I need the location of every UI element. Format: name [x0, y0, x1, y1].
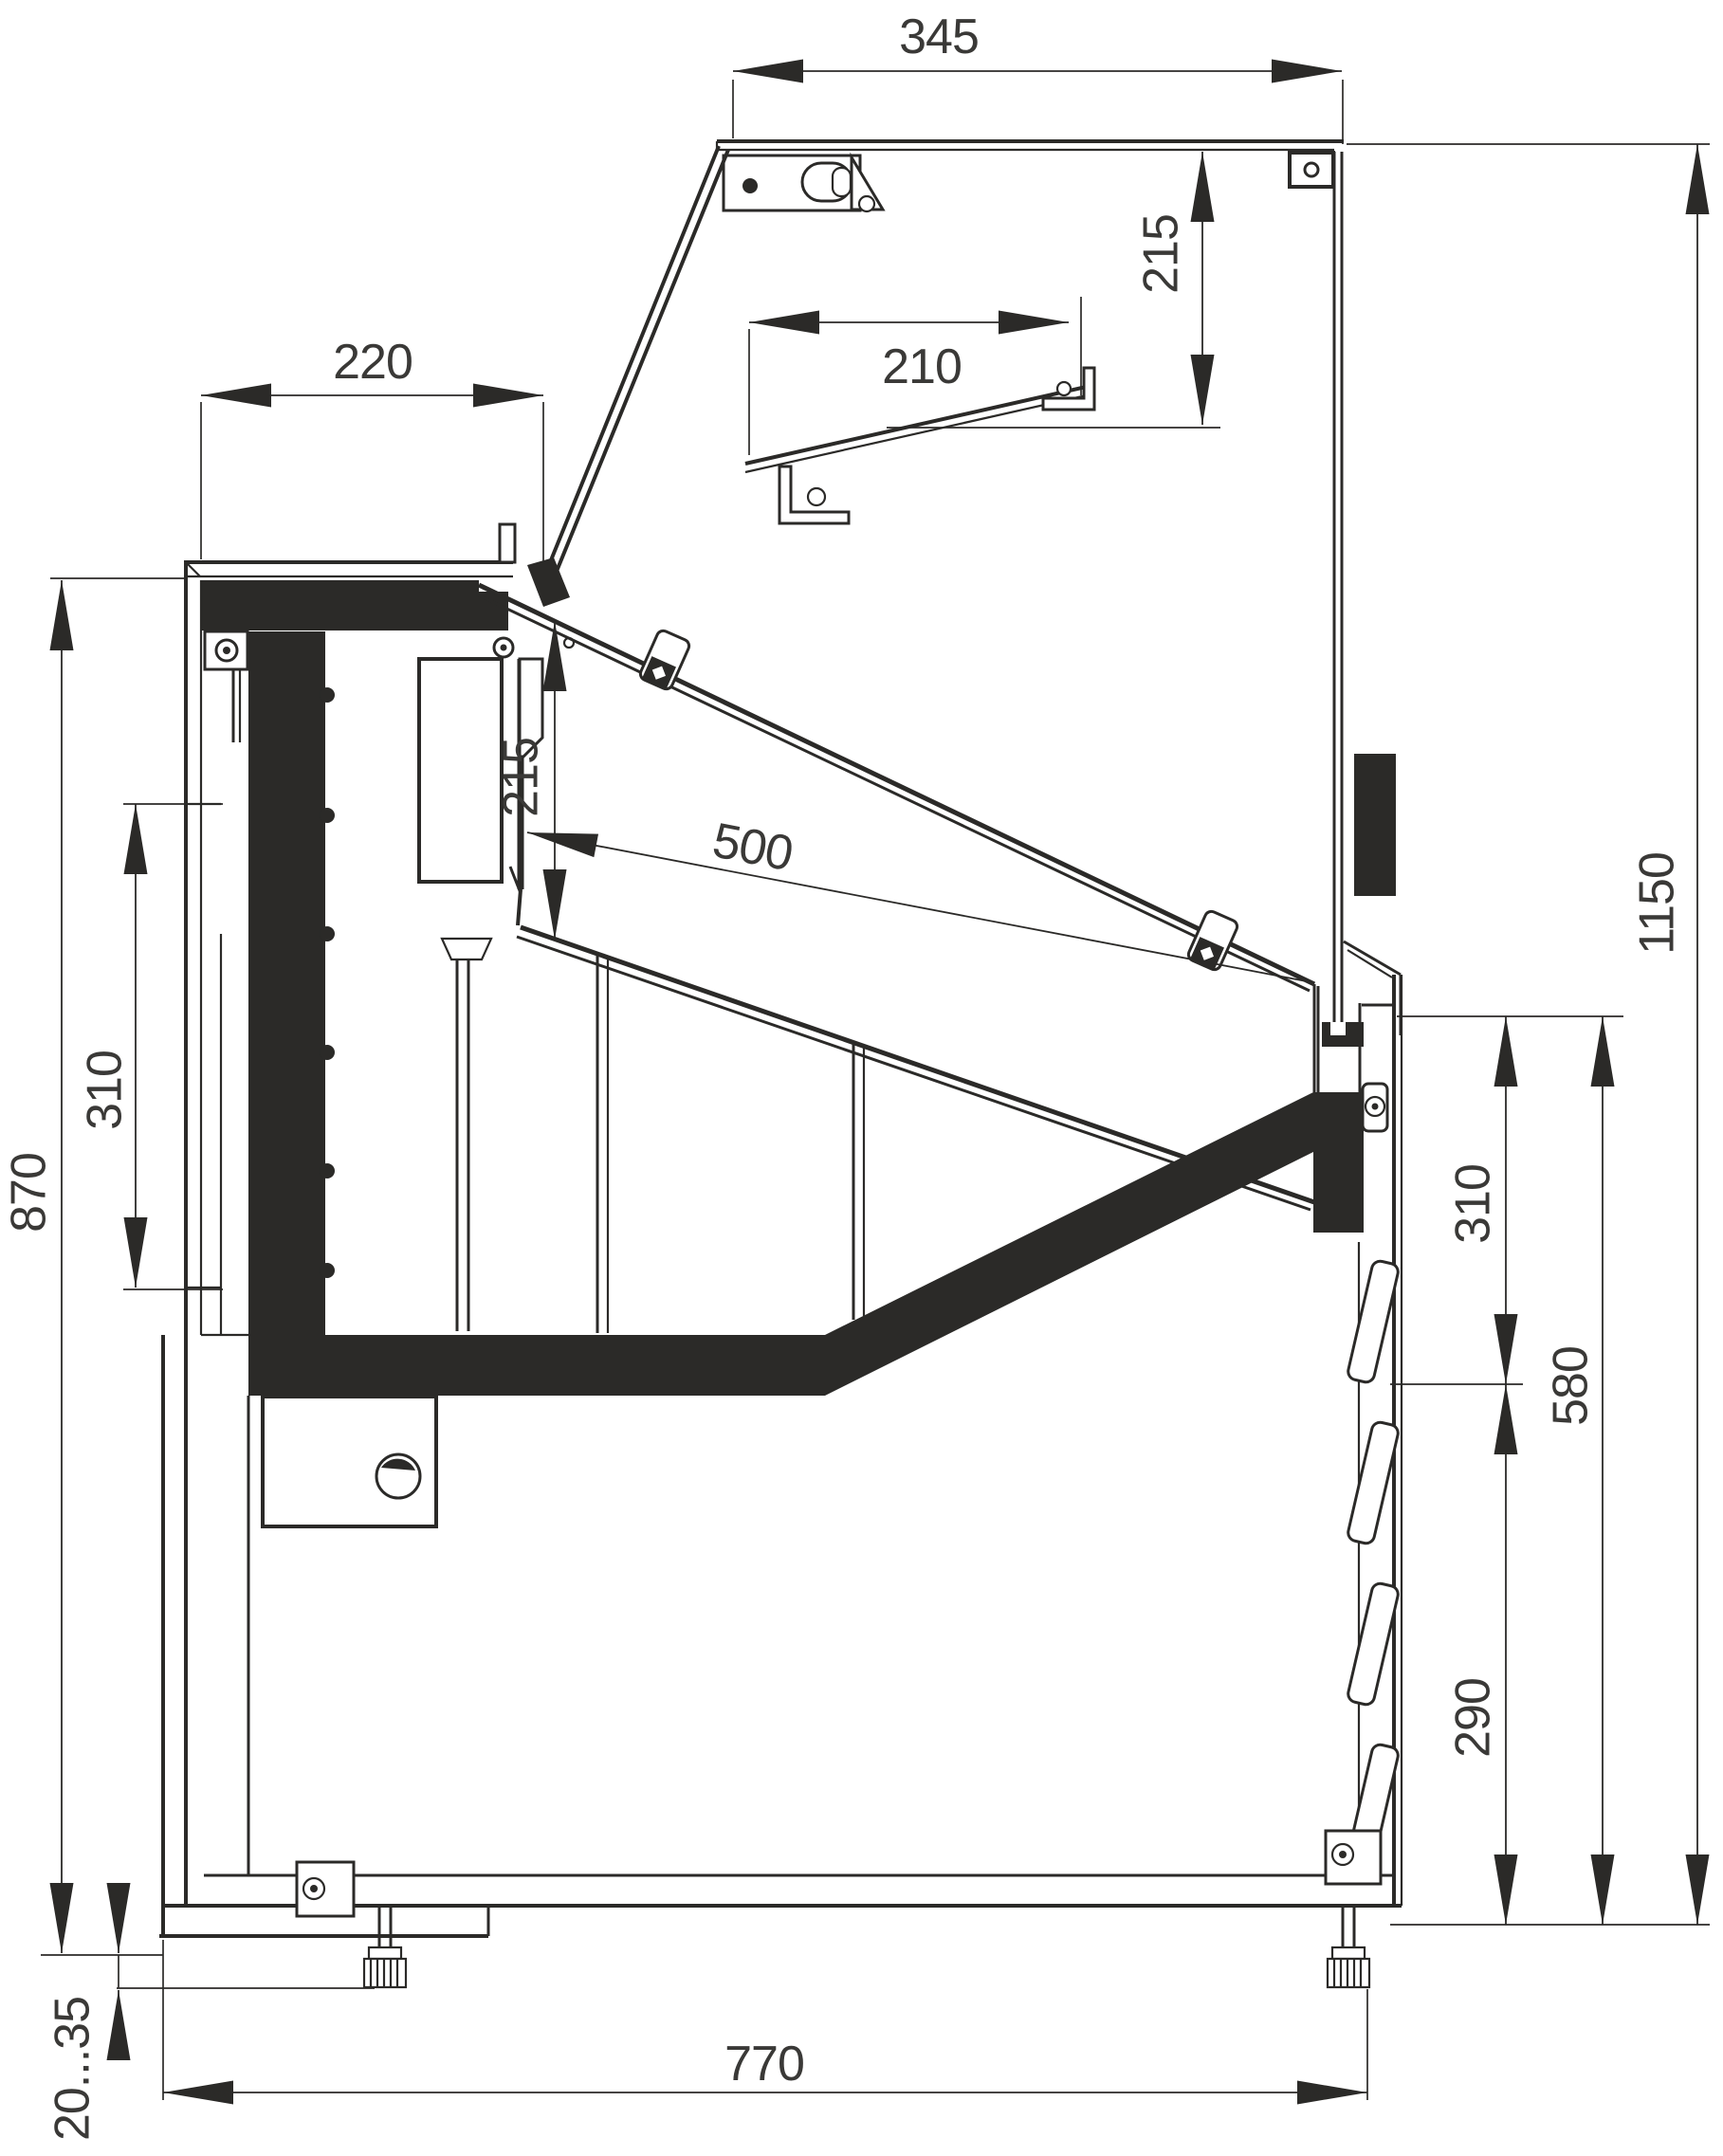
dim-215-mid-label: 215: [494, 738, 549, 817]
dim-310-right-label: 310: [1446, 1164, 1501, 1244]
rear-insulation-column: [248, 631, 335, 1335]
dimension-service-height: 870: [2, 578, 186, 1955]
bottom-insulation: [248, 986, 1364, 1396]
dim-580-label: 580: [1544, 1346, 1599, 1426]
dimension-base-height: 580: [1544, 1016, 1603, 1925]
countertop-insulation: [201, 580, 508, 630]
dimension-front-module: 310: [1390, 1016, 1623, 1384]
deck-clip: [1186, 909, 1239, 972]
drain-pipe: [442, 939, 491, 1331]
rear-wall: [163, 562, 248, 1936]
dim-870-label: 870: [2, 1153, 57, 1233]
dimension-canopy-depth: 345: [733, 9, 1343, 144]
dimension-grille-height: 290: [1446, 1384, 1506, 1925]
dimension-shelf-width: 210: [749, 297, 1081, 455]
ventilation-louvers: [1347, 1259, 1400, 1867]
bracket-hole-icon: [1305, 163, 1318, 176]
canopy-front-bracket: [1290, 153, 1333, 187]
front-glass: [1322, 152, 1364, 1047]
leveling-foot-left: [364, 1906, 406, 1987]
dim-500-label: 500: [708, 813, 797, 882]
front-bumper: [1354, 754, 1396, 896]
dim-290-label: 290: [1446, 1678, 1501, 1758]
base: [159, 1831, 1402, 1936]
dim-2035-label: 20...35: [46, 1997, 101, 2141]
dim-220-label: 220: [333, 335, 412, 390]
dim-1150-label: 1150: [1630, 852, 1685, 955]
dimension-leveling-range: 20...35: [46, 1885, 375, 2141]
drawing-page: 345 215 220 210 500 215 310: [0, 0, 1723, 2156]
lamp-housing: [724, 155, 883, 211]
evaporator-box: [419, 659, 502, 882]
dim-345-label: 345: [899, 9, 979, 64]
rear-glass-holder: [527, 557, 570, 607]
rear-sloped-glass: [527, 146, 728, 607]
display-deck: [477, 585, 1314, 1092]
dim-215-top-label: 215: [1134, 214, 1189, 294]
countertop-lip: [500, 524, 515, 562]
lamp-fastener-icon: [742, 178, 758, 193]
machine-compartment: [248, 1396, 436, 1875]
dim-210-label: 210: [882, 339, 962, 394]
technical-drawing: 345 215 220 210 500 215 310: [0, 0, 1723, 2156]
dim-310-left-label: 310: [78, 1051, 133, 1130]
dimension-countertop-depth: 220: [201, 335, 543, 565]
canopy: [717, 141, 1344, 152]
dim-770-label: 770: [724, 2037, 804, 2092]
leveling-foot-right: [1328, 1906, 1369, 1987]
dimension-base-depth: 770: [163, 1940, 1367, 2100]
countertop: [184, 524, 574, 742]
